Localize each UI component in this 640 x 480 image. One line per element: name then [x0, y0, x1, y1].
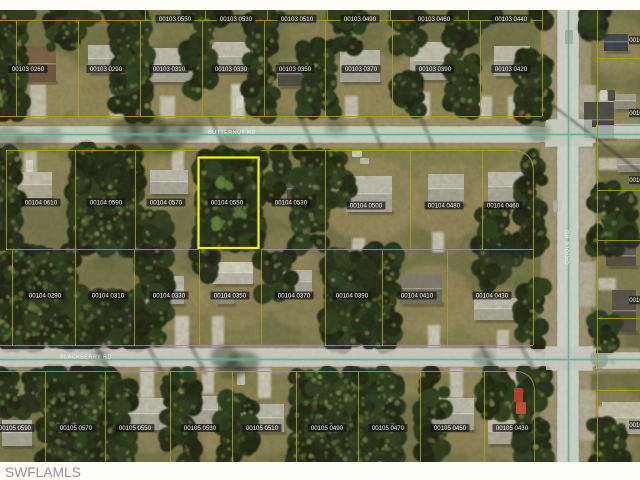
svg-text:00105 0450: 00105 0450: [434, 425, 467, 432]
svg-text:00104 0390: 00104 0390: [336, 293, 369, 300]
svg-text:00104 0610: 00104 0610: [25, 200, 58, 207]
svg-text:00104 0410: 00104 0410: [401, 293, 434, 300]
svg-text:00103 0460: 00103 0460: [418, 16, 451, 23]
svg-text:00105 0470: 00105 0470: [372, 425, 405, 432]
svg-text:BLACKBERRY RD: BLACKBERRY RD: [60, 355, 112, 361]
svg-text:00104 0460: 00104 0460: [487, 203, 520, 210]
svg-text:00103 0370: 00103 0370: [345, 66, 378, 73]
svg-text:00104 0370: 00104 0370: [278, 293, 311, 300]
svg-text:00104 0430: 00104 0430: [476, 293, 509, 300]
svg-text:00105 0590: 00105 0590: [0, 425, 32, 432]
svg-text:00103 0290: 00103 0290: [90, 66, 123, 73]
svg-text:00104 0590: 00104 0590: [90, 200, 123, 207]
svg-text:SWFLAMLS: SWFLAMLS: [5, 465, 81, 480]
svg-text:00104 0480: 00104 0480: [428, 203, 461, 210]
svg-text:00104 0350: 00104 0350: [214, 293, 247, 300]
svg-text:00104 0310: 00104 0310: [92, 293, 125, 300]
svg-text:0010: 0010: [629, 422, 640, 429]
svg-text:00105 0530: 00105 0530: [184, 425, 217, 432]
svg-text:00103 0530: 00103 0530: [220, 16, 253, 23]
svg-text:00104 0290: 00104 0290: [29, 293, 62, 300]
svg-text:0010: 0010: [629, 297, 640, 304]
svg-text:0010: 0010: [629, 177, 640, 184]
svg-text:00105 0550: 00105 0550: [119, 425, 152, 432]
svg-text:00103 0550: 00103 0550: [159, 16, 192, 23]
svg-text:00105 0510: 00105 0510: [246, 425, 279, 432]
svg-text:00103 0310: 00103 0310: [153, 66, 186, 73]
svg-text:00103 0510: 00103 0510: [281, 16, 314, 23]
svg-text:00104 0570: 00104 0570: [150, 200, 183, 207]
svg-text:00105 0430: 00105 0430: [496, 425, 529, 432]
svg-text:00103 0490: 00103 0490: [344, 16, 377, 23]
svg-text:00103 0440: 00103 0440: [495, 16, 528, 23]
svg-text:00104 0550: 00104 0550: [211, 200, 244, 207]
svg-text:00104 0530: 00104 0530: [275, 200, 308, 207]
svg-text:0010: 0010: [629, 37, 640, 44]
svg-text:0010: 0010: [629, 110, 640, 117]
svg-text:BUTTERNUT RD: BUTTERNUT RD: [208, 130, 256, 136]
svg-text:00103 0420: 00103 0420: [495, 66, 528, 73]
svg-text:ORIOLE RD: ORIOLE RD: [565, 229, 571, 264]
svg-text:00103 0350: 00103 0350: [279, 66, 312, 73]
svg-text:00104 0500: 00104 0500: [350, 203, 383, 210]
svg-text:00103 0390: 00103 0390: [419, 66, 452, 73]
svg-text:00104 0330: 00104 0330: [153, 293, 186, 300]
svg-text:00103 0330: 00103 0330: [215, 66, 248, 73]
svg-text:00103 0260: 00103 0260: [12, 66, 45, 73]
svg-text:00105 0490: 00105 0490: [311, 425, 344, 432]
svg-text:00105 0570: 00105 0570: [60, 425, 93, 432]
